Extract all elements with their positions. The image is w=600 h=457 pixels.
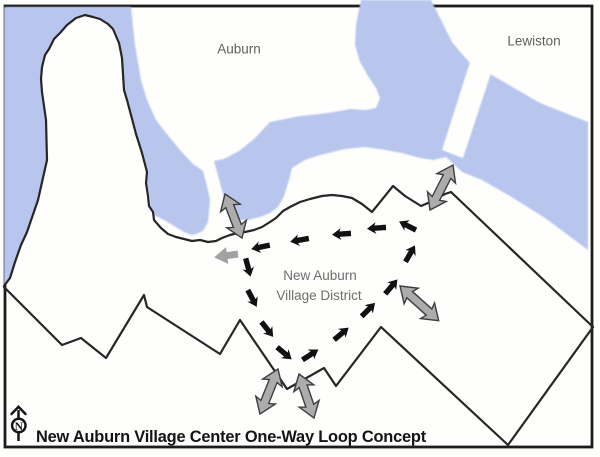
svg-text:Auburn: Auburn	[217, 42, 261, 57]
svg-text:Lewiston: Lewiston	[507, 34, 560, 49]
svg-text:Village District: Village District	[276, 288, 362, 303]
svg-text:New Auburn: New Auburn	[283, 268, 357, 283]
svg-text:N: N	[15, 421, 24, 433]
svg-text:New Auburn Village Center One-: New Auburn Village Center One-Way Loop C…	[36, 428, 427, 446]
